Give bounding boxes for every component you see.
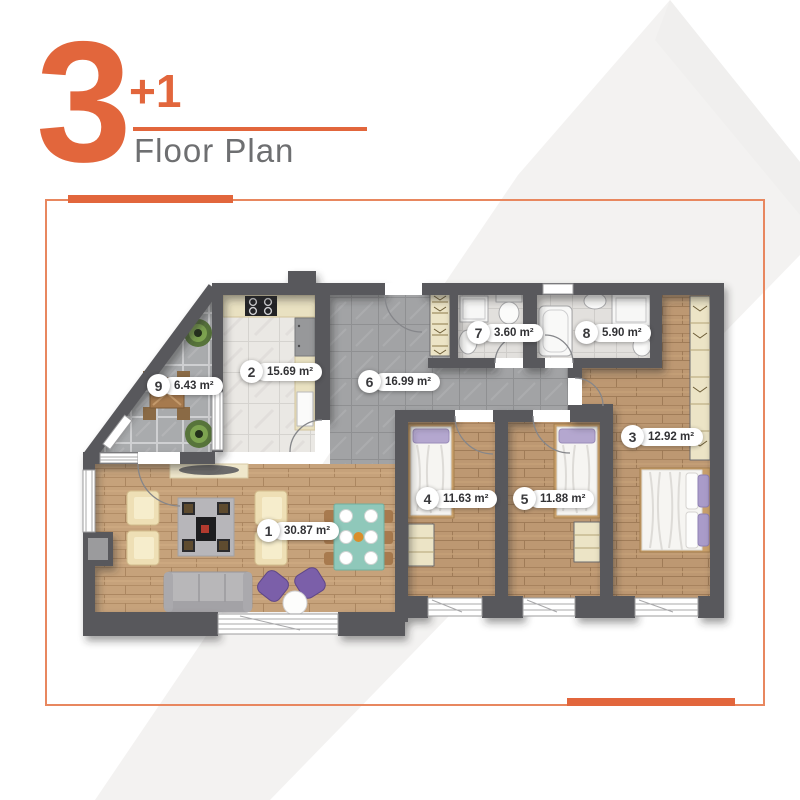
- room-number-badge: 7: [467, 321, 490, 344]
- room-label-hall: 6 16.99 m²: [358, 370, 440, 393]
- room-number-badge: 9: [147, 374, 170, 397]
- room-label-bathroom-small: 7 3.60 m²: [467, 321, 543, 344]
- room-label-kitchen: 2 15.69 m²: [240, 360, 322, 383]
- room-number-badge: 1: [257, 519, 280, 542]
- room-label-living: 1 30.87 m²: [257, 519, 339, 542]
- room-area: 6.43 m²: [163, 377, 223, 395]
- room-area: 11.63 m²: [432, 490, 497, 508]
- title-subtitle: Floor Plan: [134, 132, 294, 170]
- room-number-badge: 4: [416, 487, 439, 510]
- title-number: 3: [36, 16, 128, 188]
- room-area: 30.87 m²: [273, 522, 339, 540]
- room-label-bedroom-middle: 5 11.88 m²: [513, 487, 594, 510]
- room-number-badge: 2: [240, 360, 263, 383]
- title-plus-number: +1: [129, 68, 181, 114]
- room-label-bedroom-main: 3 12.92 m²: [621, 425, 703, 448]
- room-label-bathroom-large: 8 5.90 m²: [575, 321, 651, 344]
- room-area: 16.99 m²: [374, 373, 440, 391]
- room-area: 12.92 m²: [637, 428, 703, 446]
- room-label-terrace: 9 6.43 m²: [147, 374, 223, 397]
- room-area: 11.88 m²: [529, 490, 594, 508]
- room-area: 3.60 m²: [483, 324, 543, 342]
- room-number-badge: 6: [358, 370, 381, 393]
- room-label-bedroom-left: 4 11.63 m²: [416, 487, 497, 510]
- room-area: 5.90 m²: [591, 324, 651, 342]
- title-underline: [133, 127, 367, 131]
- room-area: 15.69 m²: [256, 363, 322, 381]
- room-number-badge: 3: [621, 425, 644, 448]
- plan-frame: [45, 199, 765, 706]
- accent-bar-bottom: [567, 698, 735, 706]
- room-number-badge: 5: [513, 487, 536, 510]
- room-number-badge: 8: [575, 321, 598, 344]
